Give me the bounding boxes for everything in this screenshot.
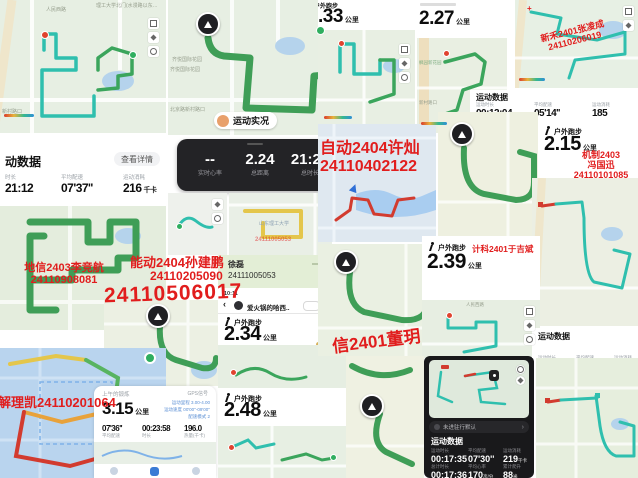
map-tile-top-center: 齐悦国际花园 齐悦国际花园 北京路新村路口 运动实况 [168, 0, 332, 135]
stat-value: 219千卡 [503, 454, 531, 464]
overlay-jizhi: 机制2403 冯国迅 24110101085 [564, 150, 638, 180]
map-tile-small [168, 193, 227, 255]
card-title: 运动数据 [431, 436, 463, 447]
stat-value: 05'14'' [534, 108, 592, 119]
route-end-dot [176, 223, 183, 230]
compass-icon[interactable] [334, 250, 358, 274]
stat-value: 216千卡 [123, 181, 163, 195]
map-tile-right-mid [532, 178, 638, 326]
route-end-dot [330, 454, 337, 461]
layers-icon[interactable] [516, 376, 525, 385]
avatar [217, 115, 229, 127]
runner-id: 24111005053 [228, 271, 276, 280]
route-start-dot [443, 50, 450, 57]
compass-icon[interactable] [146, 304, 170, 328]
stat-label: 运动消耗 [614, 346, 638, 358]
card-title: 动数据 [5, 153, 41, 170]
road-label: 人民西路 [46, 6, 66, 13]
stat-value: 07'37'' [61, 181, 123, 195]
dark-run-card: 未进驻行默认 › 运动数据 运动时长 00:17:35 平均配速 07'30''… [424, 356, 534, 478]
fullscreen-icon[interactable] [524, 306, 535, 317]
nav-icon-right[interactable] [192, 467, 200, 475]
map-controls [524, 306, 535, 345]
stat-value: 196.0 [184, 424, 214, 433]
layers-icon[interactable] [148, 32, 159, 43]
faint-id-overlay: 24111005053 [255, 237, 291, 243]
road-label: 人民西路 [466, 302, 484, 308]
stat-label: 运动消耗 [123, 173, 163, 181]
distance-value: 2.34公里 [224, 323, 277, 346]
stat-label: 热量(千卡) [184, 433, 214, 439]
gps-signal-label: GPS信号 [187, 390, 208, 397]
stat-value: 2.24 [235, 151, 285, 168]
pace-gradient-bar [4, 114, 34, 117]
fullscreen-icon[interactable] [399, 44, 410, 55]
map-controls [516, 365, 525, 385]
stat-value: 07'30'' [468, 454, 503, 464]
distance-value: 2.27公里 [419, 8, 470, 30]
stat-label: 时长 [142, 433, 184, 439]
layers-icon[interactable] [212, 199, 223, 210]
stat-label: 实时心率 [185, 168, 235, 177]
banner-icon [434, 424, 440, 430]
map-tile-bottom-right [536, 358, 638, 478]
bottom-nav-bar [94, 464, 216, 478]
mini-map [218, 426, 346, 478]
sport-data-strip-2: 运动数据 运动时长 平均配速 运动消耗 [532, 328, 638, 358]
sport-data-card: 动数据 查看详情 时长 21:12 平均配速 07'37'' 运动消耗 216千… [0, 149, 166, 204]
stats-row: 时长 21:12 平均配速 07'37'' 运动消耗 216千卡 [5, 173, 163, 195]
park-label: 枫园新花园 [419, 60, 442, 66]
overlay-nengdong-big-id: 24110506017 [104, 280, 243, 308]
layers-icon[interactable] [399, 58, 410, 69]
stat-value: 21:12 [5, 181, 61, 195]
stat-label: 时长 [5, 173, 61, 181]
pace-gradient-bar [324, 116, 352, 119]
chevron-right-icon: › [522, 424, 524, 431]
run-tile-033: 户外跑步 .33公里 [318, 0, 415, 126]
gate-label: 理工大学北门(水漫路以东… [96, 2, 158, 9]
route-map-svg [532, 178, 638, 326]
stat-label: 总距离 [235, 168, 285, 177]
locate-icon[interactable] [516, 365, 525, 374]
live-status-pill[interactable]: 运动实况 [214, 112, 277, 129]
chat-title: 爱火锅的哈西.. [247, 302, 290, 312]
map-tile-top-right: + 新禾2401张凌成 24110206019 [515, 0, 638, 88]
layers-icon[interactable] [524, 320, 535, 331]
run-tile-248: 户外跑步 2.48公里 [218, 390, 346, 478]
route-start-dot [41, 31, 49, 39]
run-tile-239: 户外跑步 2.39公里 计科2401于吉斌 [422, 236, 540, 300]
banner-text: 未进驻行默认 [443, 423, 476, 431]
map-tile-topleft: 人民西路 理工大学北门(水漫路以东… 新村路口 [0, 0, 166, 133]
map-controls [399, 44, 410, 83]
locate-icon[interactable] [399, 72, 410, 83]
nav-icon-center[interactable] [150, 467, 159, 476]
stat-label: 平均配速 [61, 173, 123, 181]
run-settings-lines: 运动里程 3.00-4.00 运动速度 00'00''-09'00'' 配速模式… [164, 400, 210, 420]
distance-value: .33公里 [318, 6, 359, 28]
route-start-cross: + [527, 4, 532, 13]
route-end-dot [316, 26, 325, 35]
compass-icon[interactable] [196, 12, 220, 36]
route-start-dot [446, 312, 453, 319]
overlay-jieli: 解理凯24110201064 [0, 396, 116, 411]
distance-value: 2.48公里 [224, 399, 277, 422]
stat-value: 07'36'' [102, 424, 142, 433]
road-label: 新村路口 [419, 100, 437, 106]
stat-value: 88米 [503, 470, 531, 478]
mini-map [318, 30, 415, 126]
compass-icon[interactable] [450, 122, 474, 146]
locate-icon[interactable] [148, 46, 159, 57]
view-details-button[interactable]: 查看详情 [114, 152, 160, 166]
stat-value: 185 [592, 108, 632, 119]
route-start-dot [338, 40, 345, 47]
pace-gradient-bar [421, 122, 447, 125]
route-map-svg [536, 358, 638, 478]
stats-row: 07'36'' 平均配速 00:23:58 时长 196.0 热量(千卡) [102, 424, 214, 439]
mini-map-strip [94, 442, 216, 464]
stat-value: -- [185, 151, 235, 168]
stat-label: 运动时长 [538, 346, 576, 358]
map-tile-compass-bottom [346, 356, 424, 478]
map-pin [144, 352, 156, 364]
overlay-dixin: 地信2403李竞航 24110908081 [8, 262, 120, 287]
stat-value: 00:17:36 [431, 470, 468, 478]
route-map-svg [422, 300, 540, 358]
route-end-dot [129, 51, 137, 59]
overlay-jike: 计科2401于吉斌 [472, 245, 533, 255]
compass-icon[interactable] [360, 394, 384, 418]
fullscreen-icon[interactable] [148, 18, 159, 29]
collage-canvas: { "overlay_red": { "zidong1": "自动2404许灿"… [0, 0, 638, 478]
park-label: 齐悦国际花园 [172, 56, 202, 63]
overlay-zidong: 自动2404许灿 24110402122 [320, 140, 420, 176]
route-map-svg [346, 356, 424, 478]
runner-name: 徐磊 [228, 259, 244, 270]
strip-title: 运动数据 [538, 331, 570, 342]
route-start-dot [228, 444, 235, 451]
live-stats-panel: -- 实时心率 2.24 总距离 21:24 总时长 [177, 139, 332, 191]
layers-icon[interactable] [623, 20, 634, 31]
stat-value: 170次/分 [468, 470, 503, 478]
map-controls [148, 18, 159, 57]
map-tile-compass-mid [438, 112, 538, 236]
dark-mini-map [429, 360, 529, 418]
map-tile-yellow-route: 山东理工大学 24111005053 [229, 193, 332, 255]
stat-label: 平均配速 [576, 346, 614, 358]
stat-value: 00:17:35 [431, 454, 468, 464]
nav-icon-left[interactable] [110, 467, 118, 475]
live-pill-label: 运动实况 [233, 114, 269, 127]
park-label-2: 齐悦国际花园 [170, 66, 200, 73]
route-start-dot [230, 369, 237, 376]
fullscreen-icon[interactable] [623, 6, 634, 17]
stat-value: 00:23:58 [142, 424, 184, 433]
dark-banner-row[interactable]: 未进驻行默认 › [429, 421, 529, 433]
person-marker [489, 370, 499, 381]
stat-label: 平均配速 [102, 433, 142, 439]
locate-icon[interactable] [212, 213, 223, 224]
map-controls [623, 6, 634, 31]
road-label: 北京路新村路口 [170, 106, 205, 113]
locate-icon[interactable] [524, 334, 535, 345]
faint-header-line [420, 3, 456, 6]
drag-handle[interactable] [247, 143, 263, 145]
route-start-tick [441, 365, 449, 369]
map-tile-under-239: 人民西路 [422, 300, 540, 358]
university-label: 山东理工大学 [259, 220, 289, 227]
map-controls [212, 199, 223, 224]
map-tile-xucan: 自动2404许灿 24110402122 [318, 124, 436, 242]
pace-gradient-bar [519, 78, 545, 81]
